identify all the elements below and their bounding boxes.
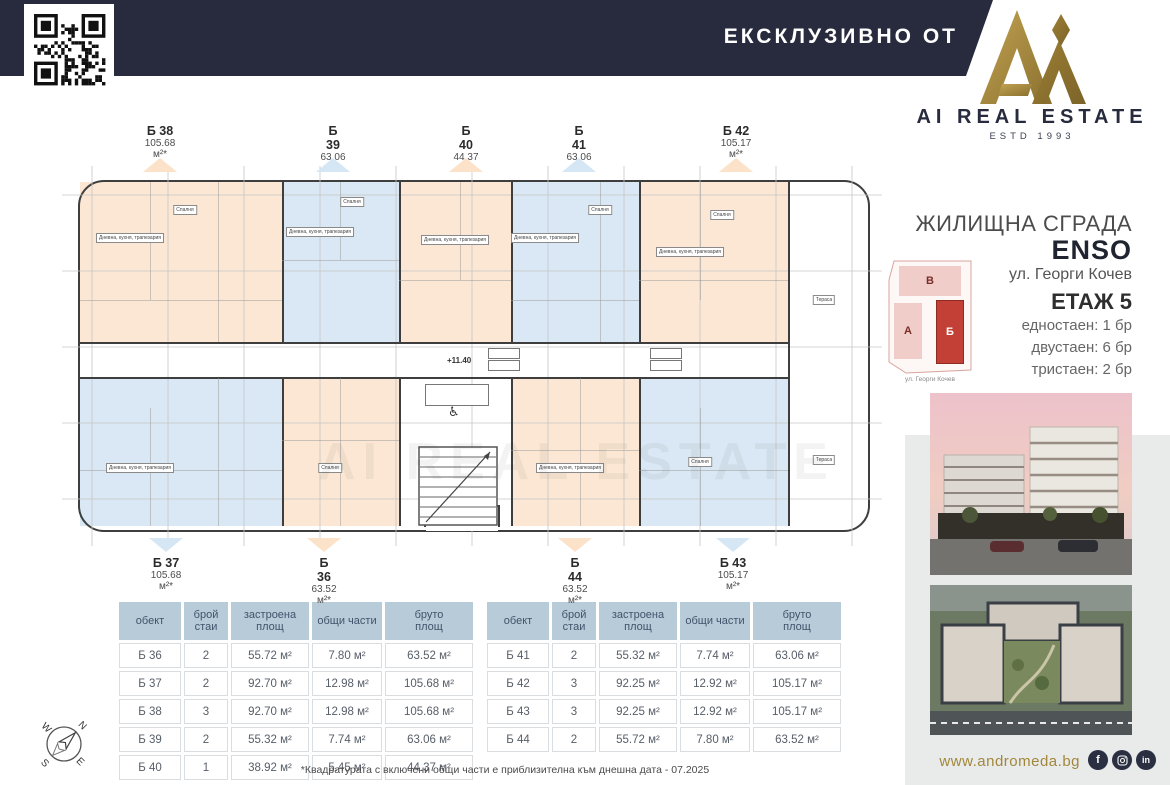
room-label: Дневна, кухня, трапезария bbox=[511, 233, 579, 243]
plan-info-box bbox=[488, 348, 520, 359]
table-cell: 12.92 м² bbox=[680, 671, 750, 696]
table-cell: 55.32 м² bbox=[231, 727, 309, 752]
table-cell: 63.52 м² bbox=[385, 643, 473, 668]
elevation-label: +11.40 bbox=[447, 356, 471, 365]
area-table-left: обектброй стаизастроена площобщи частибр… bbox=[119, 602, 473, 783]
table-header-cell: брой стаи bbox=[184, 602, 228, 640]
room-label: Спалня bbox=[340, 197, 364, 207]
table-cell: 2 bbox=[552, 643, 596, 668]
room-label: Дневна, кухня, трапезария bbox=[286, 227, 354, 237]
room-label: Дневна, кухня, трапезария bbox=[96, 233, 164, 243]
unit-label-Б42: Б 42105.17 м²* bbox=[721, 124, 752, 160]
table-cell: 2 bbox=[552, 727, 596, 752]
table-cell: 7.74 м² bbox=[680, 643, 750, 668]
unit-label-Б43: Б 43105.17 м²* bbox=[718, 556, 749, 592]
table-cell: 105.68 м² bbox=[385, 699, 473, 724]
table-header-cell: застроена площ bbox=[231, 602, 309, 640]
unit-marker-triangle-icon bbox=[149, 538, 183, 552]
room-label: Спалня bbox=[710, 210, 734, 220]
linkedin-icon[interactable]: in bbox=[1136, 750, 1156, 770]
unit-marker-triangle-icon bbox=[719, 158, 753, 172]
table-cell: 92.25 м² bbox=[599, 699, 677, 724]
table-row: Б 43392.25 м²12.92 м²105.17 м² bbox=[487, 699, 841, 724]
table-header-cell: брой стаи bbox=[552, 602, 596, 640]
table-header-cell: обект bbox=[119, 602, 181, 640]
compass-e: E bbox=[74, 756, 87, 769]
facebook-icon[interactable]: f bbox=[1088, 750, 1108, 770]
wheelchair-icon: ♿ bbox=[448, 404, 460, 420]
table-cell: 105.17 м² bbox=[753, 699, 841, 724]
table-cell: 92.70 м² bbox=[231, 671, 309, 696]
table-row: Б 42392.25 м²12.92 м²105.17 м² bbox=[487, 671, 841, 696]
table-cell: 55.72 м² bbox=[231, 643, 309, 668]
table-row: Б 39255.32 м²7.74 м²63.06 м² bbox=[119, 727, 473, 752]
compass-rose-icon: N E S W bbox=[26, 704, 102, 785]
table-cell: 63.06 м² bbox=[753, 643, 841, 668]
table-row: Б 38392.70 м²12.98 м²105.68 м² bbox=[119, 699, 473, 724]
table-cell: 55.72 м² bbox=[599, 727, 677, 752]
table-cell: 105.68 м² bbox=[385, 671, 473, 696]
table-cell: Б 36 bbox=[119, 643, 181, 668]
table-row: Б 36255.72 м²7.80 м²63.52 м² bbox=[119, 643, 473, 668]
table-cell: 7.74 м² bbox=[312, 727, 382, 752]
table-cell: Б 42 bbox=[487, 671, 549, 696]
website-link[interactable]: www.andromeda.bg bbox=[930, 753, 1080, 770]
table-cell: 2 bbox=[184, 671, 228, 696]
table-cell: Б 37 bbox=[119, 671, 181, 696]
table-cell: 92.25 м² bbox=[599, 671, 677, 696]
table-cell: 3 bbox=[552, 699, 596, 724]
table-cell: 3 bbox=[184, 699, 228, 724]
table-cell: 63.52 м² bbox=[753, 727, 841, 752]
table-cell: 3 bbox=[552, 671, 596, 696]
table-header-cell: застроена площ bbox=[599, 602, 677, 640]
table-cell: 12.92 м² bbox=[680, 699, 750, 724]
room-label: Дневна, кухня, трапезария bbox=[106, 463, 174, 473]
social-icons: fin bbox=[1088, 750, 1156, 770]
table-cell: 105.17 м² bbox=[753, 671, 841, 696]
unit-label-Б37: Б 37105.68 м²* bbox=[151, 556, 182, 592]
unit-marker-triangle-icon bbox=[143, 158, 177, 172]
table-cell: Б 41 bbox=[487, 643, 549, 668]
table-cell: Б 44 bbox=[487, 727, 549, 752]
table-cell: Б 39 bbox=[119, 727, 181, 752]
room-label: Дневна, кухня, трапезария bbox=[421, 235, 489, 245]
plan-watermark: AI REAL ESTATE bbox=[318, 432, 835, 492]
table-row: Б 41255.32 м²7.74 м²63.06 м² bbox=[487, 643, 841, 668]
unit-marker-triangle-icon bbox=[716, 538, 750, 552]
table-cell: 55.32 м² bbox=[599, 643, 677, 668]
unit-marker-triangle-icon bbox=[558, 538, 592, 552]
compass-n: N bbox=[76, 720, 89, 733]
building-render-photo-aerial bbox=[930, 585, 1132, 735]
table-row: Б 37292.70 м²12.98 м²105.68 м² bbox=[119, 671, 473, 696]
table-cell: Б 43 bbox=[487, 699, 549, 724]
table-cell: 12.98 м² bbox=[312, 699, 382, 724]
table-cell: 2 bbox=[184, 727, 228, 752]
unit-marker-triangle-icon bbox=[449, 158, 483, 172]
compass-s: S bbox=[38, 757, 51, 770]
plan-info-box bbox=[425, 384, 489, 406]
table-header-cell: общи части bbox=[312, 602, 382, 640]
unit-label-Б44: Б 4463.52 м²* bbox=[562, 556, 587, 606]
room-label: Спалня bbox=[588, 205, 612, 215]
table-cell: 7.80 м² bbox=[312, 643, 382, 668]
instagram-icon[interactable] bbox=[1112, 750, 1132, 770]
table-cell: 92.70 м² bbox=[231, 699, 309, 724]
room-label: Дневна, кухня, трапезария bbox=[656, 247, 724, 257]
unit-label-Б36: Б 3663.52 м²* bbox=[311, 556, 336, 606]
unit-label-Б38: Б 38105.68 м²* bbox=[145, 124, 176, 160]
plan-info-box bbox=[488, 360, 520, 371]
table-row: Б 44255.72 м²7.80 м²63.52 м² bbox=[487, 727, 841, 752]
table-header-cell: обект bbox=[487, 602, 549, 640]
table-header-cell: бруто площ bbox=[385, 602, 473, 640]
area-table-right: обектброй стаизастроена площобщи частибр… bbox=[487, 602, 841, 755]
footnote: *Квадратурата с включени общи части е пр… bbox=[130, 764, 880, 776]
table-header-cell: бруто площ bbox=[753, 602, 841, 640]
unit-marker-triangle-icon bbox=[316, 158, 350, 172]
unit-marker-triangle-icon bbox=[307, 538, 341, 552]
table-cell: 63.06 м² bbox=[385, 727, 473, 752]
plan-info-box bbox=[650, 348, 682, 359]
table-header-cell: общи части bbox=[680, 602, 750, 640]
table-cell: 7.80 м² bbox=[680, 727, 750, 752]
table-cell: 2 bbox=[184, 643, 228, 668]
room-label: Спалня bbox=[173, 205, 197, 215]
unit-marker-triangle-icon bbox=[562, 158, 596, 172]
table-cell: Б 38 bbox=[119, 699, 181, 724]
room-label: Тераса bbox=[813, 295, 835, 305]
plan-info-box bbox=[650, 360, 682, 371]
table-cell: 12.98 м² bbox=[312, 671, 382, 696]
